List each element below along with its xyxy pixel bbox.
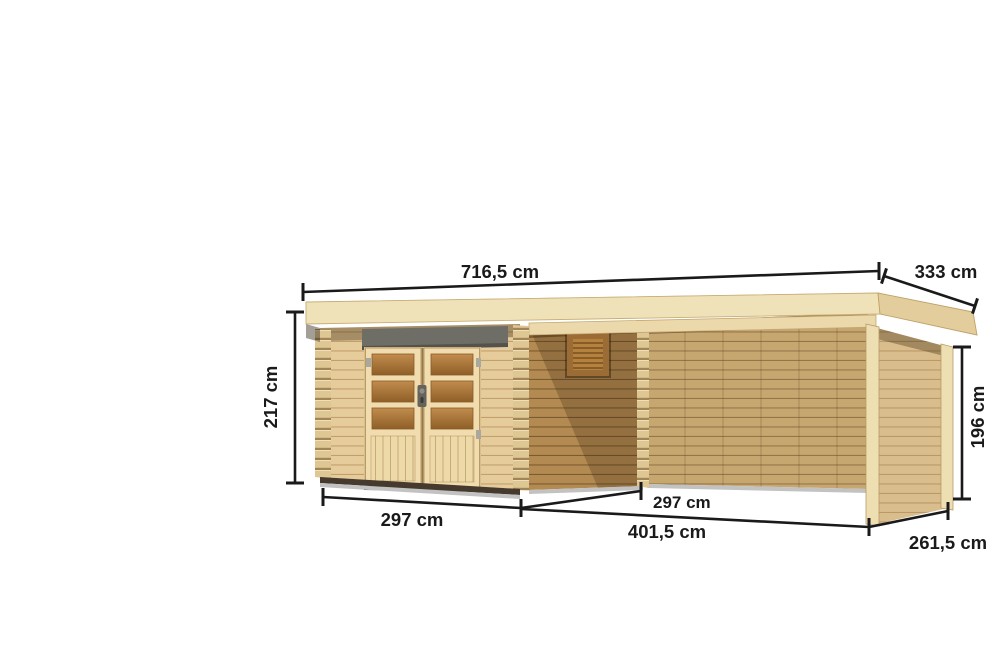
side-window bbox=[565, 331, 611, 378]
corner-post-front bbox=[866, 324, 879, 526]
dimension-annex-width: 401,5 cm bbox=[521, 509, 869, 542]
double-door bbox=[364, 347, 481, 492]
end-wall bbox=[866, 324, 953, 526]
diagram-svg: 716,5 cm 333 cm 217 cm 196 cm bbox=[0, 0, 992, 661]
product-image: 716,5 cm 333 cm 217 cm 196 cm bbox=[0, 0, 992, 661]
dimension-label-house-width: 297 cm bbox=[381, 509, 444, 530]
dimension-side-height: 196 cm bbox=[953, 347, 988, 499]
dimension-label-house-depth: 297 cm bbox=[653, 493, 711, 512]
dimension-label-annex-width: 401,5 cm bbox=[628, 521, 706, 542]
side-wall bbox=[529, 322, 649, 494]
roof-fascia-side bbox=[878, 293, 977, 335]
back-wall bbox=[649, 313, 868, 493]
left-door bbox=[366, 348, 422, 486]
dimension-label-side-height: 196 cm bbox=[967, 386, 988, 449]
dimension-label-total-depth: 333 cm bbox=[915, 261, 978, 282]
corner-post-back bbox=[941, 344, 953, 510]
dimension-label-annex-depth: 261,5 cm bbox=[909, 532, 987, 553]
door-handle bbox=[418, 385, 427, 407]
dimension-label-main-height: 217 cm bbox=[260, 366, 281, 429]
right-door bbox=[424, 348, 480, 488]
dimension-main-height: 217 cm bbox=[260, 312, 304, 483]
dimension-label-total-width: 716,5 cm bbox=[461, 261, 539, 282]
